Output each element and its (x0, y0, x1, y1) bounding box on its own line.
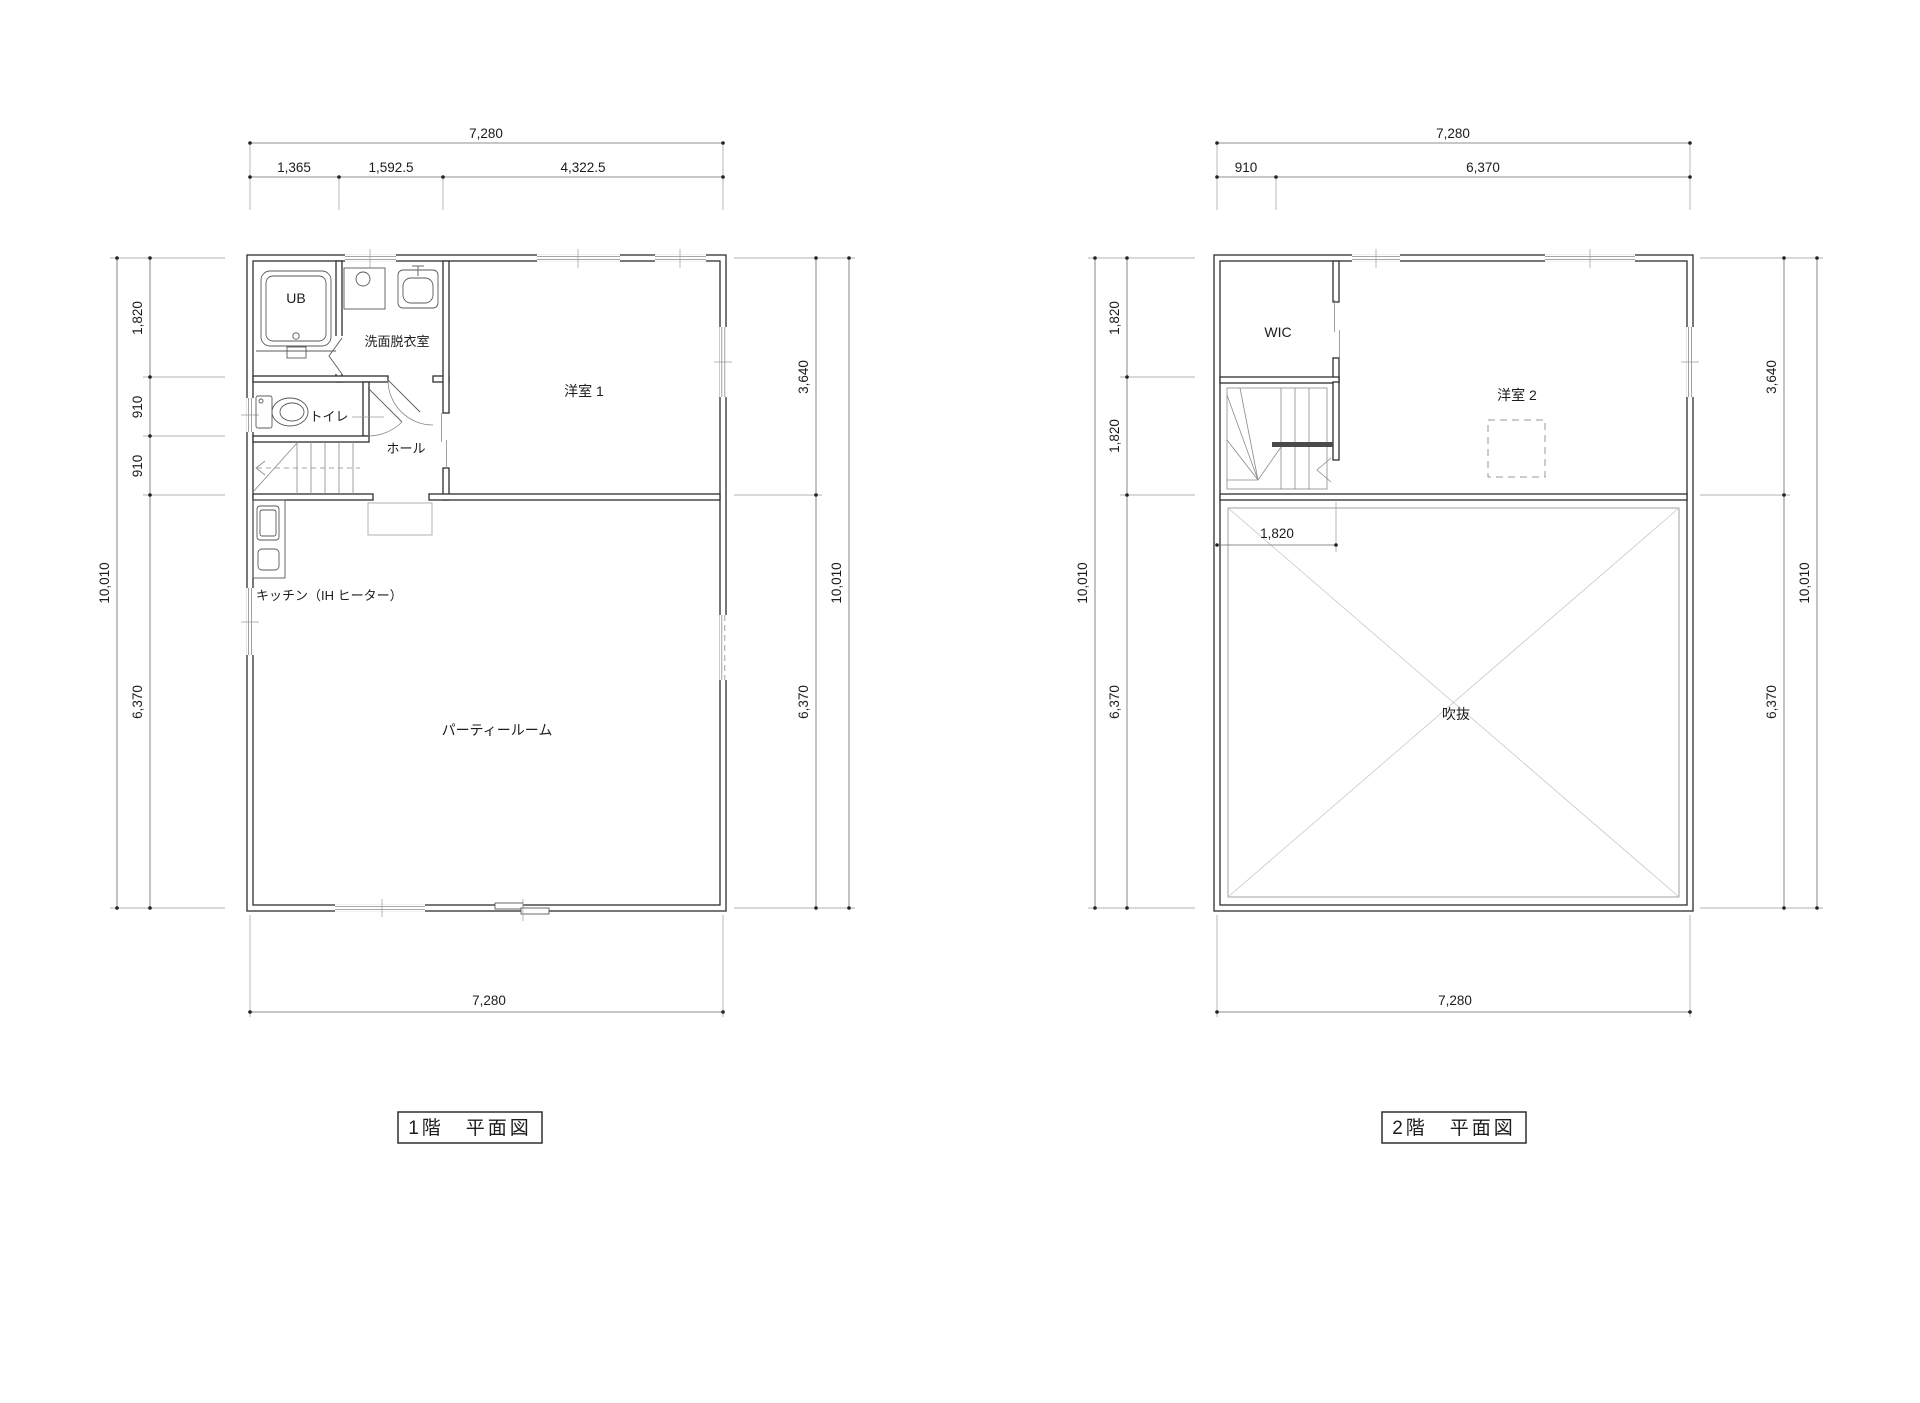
dim-bottom-total-2f: 7,280 (1438, 993, 1472, 1008)
dim-top-total-1f: 7,280 (469, 126, 503, 141)
floor1-dims-top: 7,280 1,365 1,592.5 4,322.5 (248, 126, 725, 210)
room-label-washroom: 洗面脱衣室 (364, 334, 429, 349)
floor2-dims-bottom: 7,280 (1215, 915, 1692, 1017)
dim-bottom-total-1f: 7,280 (472, 993, 506, 1008)
floor1-dims-right: 3,640 6,370 10,010 (734, 256, 855, 910)
floor2-dims-top: 7,280 910 6,370 (1215, 126, 1692, 210)
dim-stair-width-2f: 1,820 (1260, 526, 1294, 541)
floor2-dims-right: 3,640 6,370 10,010 (1700, 256, 1823, 910)
dim-right-seg1-1f: 3,640 (796, 360, 811, 394)
room-label-kitchen: キッチン（IH ヒーター） (256, 588, 403, 603)
dim-right-total-2f: 10,010 (1797, 562, 1812, 603)
floor-plan-sheet: UB 洗面脱衣室 トイレ ホール 洋室 1 キッチン（IH ヒーター） パーティ… (0, 0, 1920, 1403)
room-label-ub: UB (286, 290, 305, 306)
floor1-plan: UB 洗面脱衣室 トイレ ホール 洋室 1 キッチン（IH ヒーター） パーティ… (0, 126, 1090, 1143)
dim-left-total-2f: 10,010 (1075, 562, 1090, 603)
dim-top-seg1-1f: 1,365 (277, 160, 311, 175)
dim-top-seg1-2f: 910 (1235, 160, 1258, 175)
dim-right-total-1f: 10,010 (829, 562, 844, 603)
room-label-western-room2: 洋室 2 (1497, 387, 1537, 403)
floor1-title: 1階 平面図 (398, 1112, 542, 1143)
dim-left-seg3-1f: 910 (130, 455, 145, 478)
room-label-hall: ホール (386, 441, 425, 456)
floor1-exterior-walls (247, 255, 726, 911)
room-label-party-room: パーティールーム (442, 722, 553, 738)
floor2-exterior-walls (1214, 255, 1693, 911)
room-label-void: 吹抜 (1442, 706, 1470, 722)
floor2-title: 2階 平面図 (1382, 1112, 1526, 1143)
dim-top-seg2-2f: 6,370 (1466, 160, 1500, 175)
floor1-dims-left: 10,010 1,820 910 910 6,370 (97, 256, 225, 910)
dim-right-seg2-2f: 6,370 (1764, 685, 1779, 719)
room-label-wic: WIC (1264, 324, 1291, 340)
floor1-title-label: 1階 平面図 (408, 1117, 532, 1139)
floor2-dims-left: 10,010 1,820 1,820 6,370 (1075, 256, 1195, 910)
dim-left-seg3-2f: 6,370 (1107, 685, 1122, 719)
stair-handrail (1272, 442, 1333, 447)
floor2-title-label: 2階 平面図 (1392, 1117, 1516, 1139)
entry-door-panel (495, 903, 523, 909)
dim-top-seg3-1f: 4,322.5 (560, 160, 605, 175)
floor2-plan: 1,820 WIC 洋室 2 吹抜 7,280 910 6,370 (1075, 126, 1823, 1143)
entry-door-panel (521, 908, 549, 914)
dim-top-total-2f: 7,280 (1436, 126, 1470, 141)
dim-left-seg2-2f: 1,820 (1107, 419, 1122, 453)
room-label-toilet: トイレ (309, 409, 348, 424)
floor1-dims-bottom: 7,280 (248, 915, 725, 1017)
dim-left-total-1f: 10,010 (97, 562, 112, 603)
dim-left-seg2-1f: 910 (130, 396, 145, 419)
dim-left-seg1-2f: 1,820 (1107, 301, 1122, 335)
dim-right-seg1-2f: 3,640 (1764, 360, 1779, 394)
dim-right-seg2-1f: 6,370 (796, 685, 811, 719)
dim-left-seg4-1f: 6,370 (130, 685, 145, 719)
dim-left-seg1-1f: 1,820 (130, 301, 145, 335)
room-label-western-room1: 洋室 1 (564, 383, 604, 399)
dim-top-seg2-1f: 1,592.5 (368, 160, 413, 175)
floor-plan-drawing: UB 洗面脱衣室 トイレ ホール 洋室 1 キッチン（IH ヒーター） パーティ… (0, 0, 1920, 1403)
